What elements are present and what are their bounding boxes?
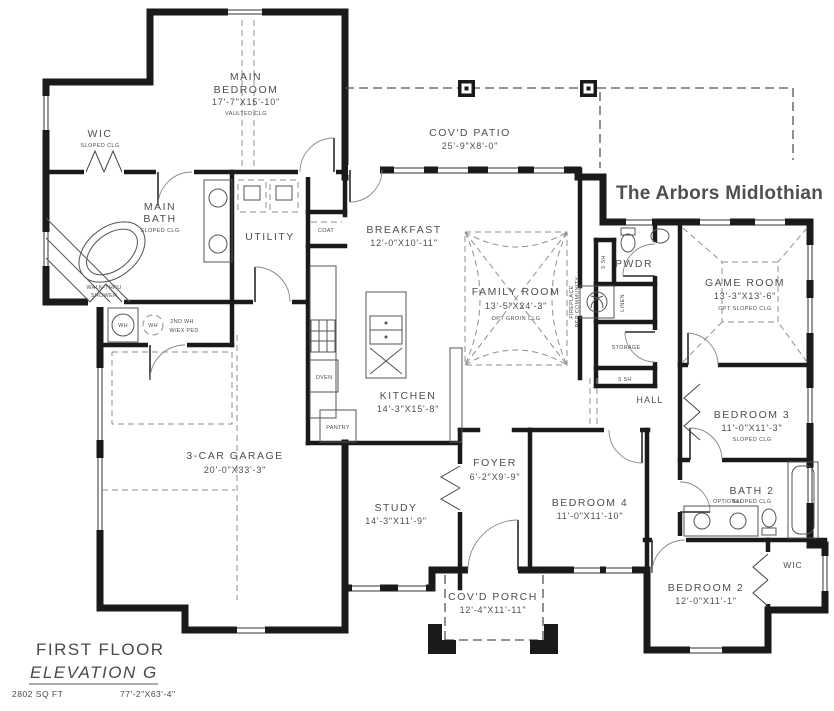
linen-label: LINEN (620, 294, 626, 312)
plan-title: The Arbors Midlothian (616, 183, 823, 204)
porch-column-se (530, 624, 558, 654)
utility-label: UTILITY (245, 231, 295, 243)
sink-icon (730, 513, 746, 529)
kitchen-counter (310, 266, 336, 418)
bedroom-hall-door-icon (300, 138, 334, 172)
svg-text:BATH: BATH (143, 213, 176, 225)
openings (41, 7, 830, 655)
bedroom2-label: BEDROOM 2 (668, 582, 745, 594)
svg-text:17'-7"X15'-10": 17'-7"X15'-10" (212, 97, 280, 107)
utility-door-icon (255, 267, 290, 302)
svg-text:25'-9"X8'-0": 25'-9"X8'-0" (442, 141, 498, 151)
exterior-walls (46, 12, 825, 650)
foyer-label: FOYER (473, 457, 517, 469)
svg-text:VAULTED CLG: VAULTED CLG (225, 111, 267, 117)
overhead-dashed-lines (102, 20, 807, 640)
svg-text:13'-5"X24'-3": 13'-5"X24'-3" (485, 301, 547, 311)
bedroom4-label: BEDROOM 4 (552, 497, 629, 509)
tub2-icon (788, 462, 818, 538)
svg-text:SHOWER: SHOWER (91, 293, 118, 299)
oven-label: OVEN (316, 375, 333, 381)
bedroom3-door-icon (690, 428, 722, 460)
floor-plan-drawing: MAIN BEDROOM 17'-7"X15'-10" VAULTED CLG … (0, 0, 834, 711)
optional-label: OPTIONAL (713, 499, 743, 505)
svg-text:W/EX PED: W/EX PED (169, 328, 198, 334)
study-label: STUDY (374, 502, 417, 514)
svg-text:14'-3"X11'-9": 14'-3"X11'-9" (365, 516, 427, 526)
svg-text:12'-0"X10'-11": 12'-0"X10'-11" (370, 238, 437, 248)
svg-text:SLOPED CLG: SLOPED CLG (732, 437, 771, 443)
wh-label: WH (118, 323, 128, 329)
future-space-outline (112, 352, 232, 424)
bath2-vanity (684, 506, 758, 536)
shower-label: WALK-THRU (86, 285, 121, 291)
svg-text:PER COMMUNITY: PER COMMUNITY (575, 277, 581, 328)
svg-text:12'-4"X11'-11": 12'-4"X11'-11" (460, 605, 527, 615)
bath2-label: BATH 2 (730, 485, 775, 497)
game-room-door-icon (688, 333, 718, 365)
shelves-pwdr-label: 5 SH (601, 255, 607, 268)
hall-label: HALL (636, 395, 663, 405)
patio-post (580, 80, 597, 97)
front-door-icon (468, 520, 518, 570)
second-wh-label: 2ND WH (170, 319, 194, 325)
floor-plan-page: MAIN BEDROOM 17'-7"X15'-10" VAULTED CLG … (0, 0, 834, 711)
kitchen-island (366, 292, 406, 378)
covd-porch-label: COV'D PORCH (448, 591, 538, 603)
svg-text:12'-0"X11'-1": 12'-0"X11'-1" (675, 596, 737, 606)
sink-icon (209, 189, 227, 207)
svg-text:14'-3"X15'-8": 14'-3"X15'-8" (377, 404, 439, 414)
porch-column-sw (428, 624, 456, 654)
main-bedroom-label: MAIN (230, 71, 262, 83)
sink-icon (209, 235, 227, 253)
cooktop-icon (311, 320, 335, 352)
storage-label: STORAGE (612, 345, 641, 351)
game-room-label: GAME ROOM (705, 277, 785, 289)
floor-label: FIRST FLOOR (36, 640, 165, 659)
svg-text:6'-2"X9'-9": 6'-2"X9'-9" (470, 472, 521, 482)
bedroom3-closet-door-icon (684, 384, 700, 440)
covd-patio-label: COV'D PATIO (429, 127, 511, 139)
breakfast-label: BREAKFAST (366, 224, 441, 236)
wic2-label: WIC (783, 560, 803, 570)
shelves-label: 5 SH (618, 377, 631, 383)
garage-label: 3-CAR GARAGE (186, 450, 283, 462)
svg-text:SLOPED CLG: SLOPED CLG (80, 143, 119, 149)
elevation-label: ELEVATION G (30, 663, 158, 682)
pantry-label: PANTRY (326, 425, 350, 431)
washer-dryer-outline (238, 180, 298, 212)
groin-ceiling-lines (465, 232, 567, 365)
bedroom3-label: BEDROOM 3 (714, 409, 791, 421)
svg-text:13'-3"X13'-6": 13'-3"X13'-6" (714, 291, 776, 301)
sink-icon (694, 513, 710, 529)
svg-text:SLOPED CLG: SLOPED CLG (140, 228, 179, 234)
svg-text:11'-0"X11'-10": 11'-0"X11'-10" (557, 511, 624, 521)
porch-columns (428, 624, 558, 654)
vanity-counter (204, 180, 232, 262)
doors (86, 138, 768, 606)
main-bath-label: MAIN (144, 201, 176, 213)
kitchen-label: KITCHEN (380, 390, 437, 402)
family-room-label: FAMILY ROOM (472, 286, 560, 298)
area-label: 2802 SQ FT (12, 689, 63, 699)
toilet-icon (762, 509, 776, 535)
svg-text:OPT GROIN CLG: OPT GROIN CLG (492, 316, 541, 322)
svg-text:OPT SLOPED CLG: OPT SLOPED CLG (718, 306, 772, 312)
wh2-label: WH (148, 323, 158, 329)
svg-text:11'-0"X11'-3": 11'-0"X11'-3" (722, 423, 783, 433)
svg-text:BEDROOM: BEDROOM (214, 84, 279, 96)
coat-label: COAT (318, 228, 334, 234)
toilet-icon (621, 228, 635, 252)
pwdr-label: PWDR (615, 258, 653, 270)
overall-dims-label: 77'-2"X63'-4" (120, 689, 175, 699)
title-block: FIRST FLOOR ELEVATION G 2802 SQ FT 77'-2… (12, 640, 175, 699)
wic-main-label: WIC (88, 128, 113, 140)
svg-text:20'-0"X33'-3": 20'-0"X33'-3" (204, 465, 266, 475)
patio-post (458, 80, 475, 97)
garage-entry-door-icon (150, 345, 185, 380)
